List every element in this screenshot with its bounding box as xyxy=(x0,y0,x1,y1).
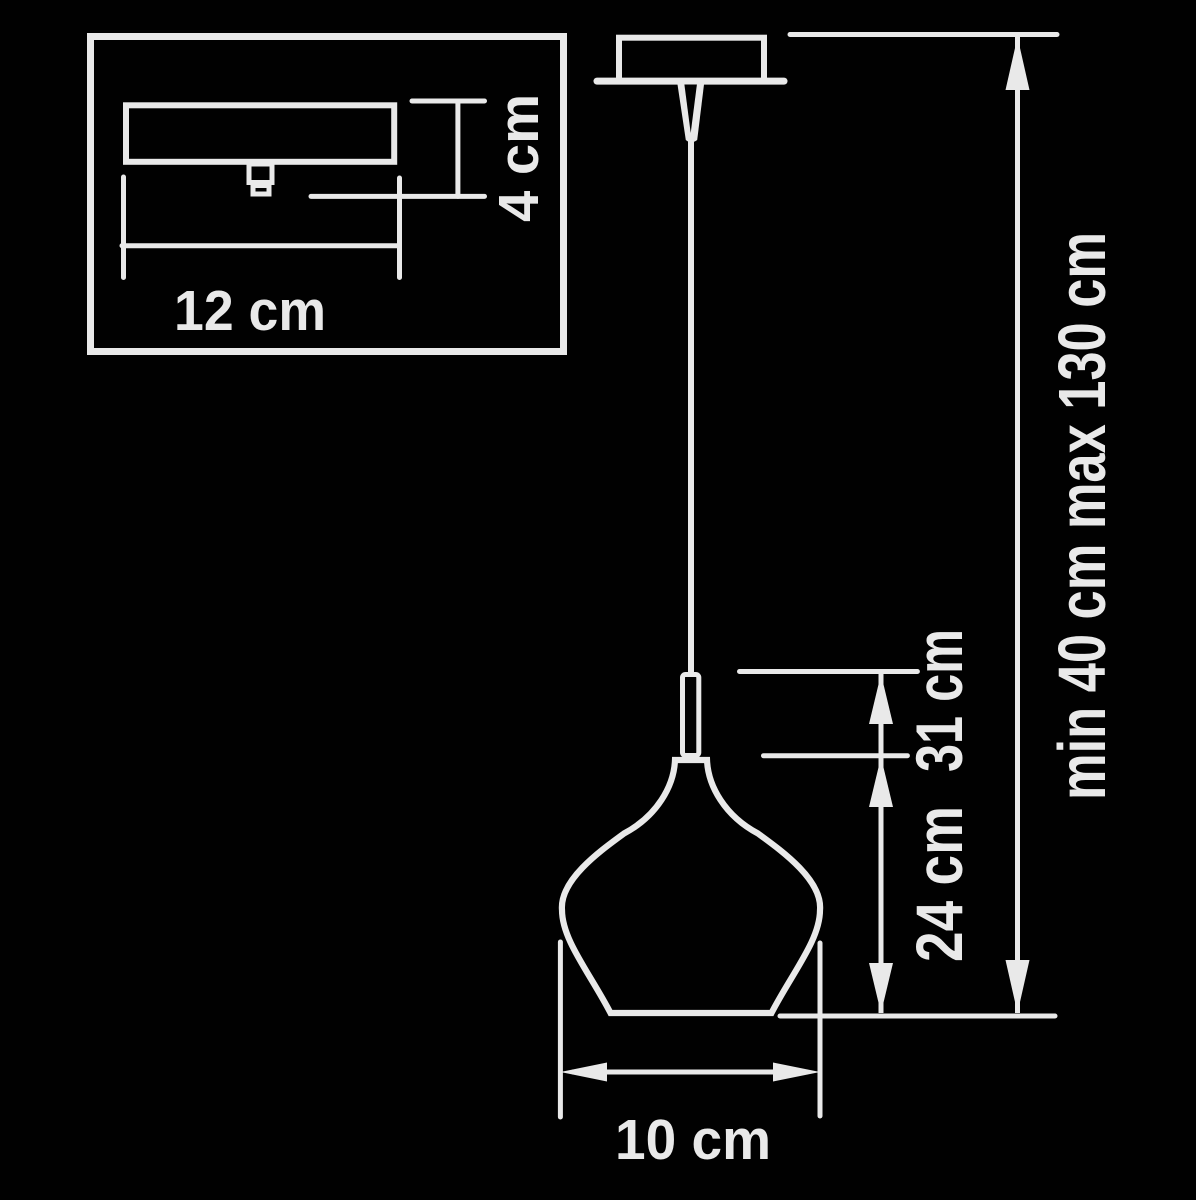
svg-text:12 cm: 12 cm xyxy=(174,279,326,343)
svg-text:10 cm: 10 cm xyxy=(615,1108,771,1172)
svg-text:24 cm: 24 cm xyxy=(902,806,976,962)
svg-text:31 cm: 31 cm xyxy=(902,629,976,772)
svg-text:min 40 cm max 130 cm: min 40 cm max 130 cm xyxy=(1045,232,1120,800)
svg-text:4 cm: 4 cm xyxy=(487,94,551,222)
